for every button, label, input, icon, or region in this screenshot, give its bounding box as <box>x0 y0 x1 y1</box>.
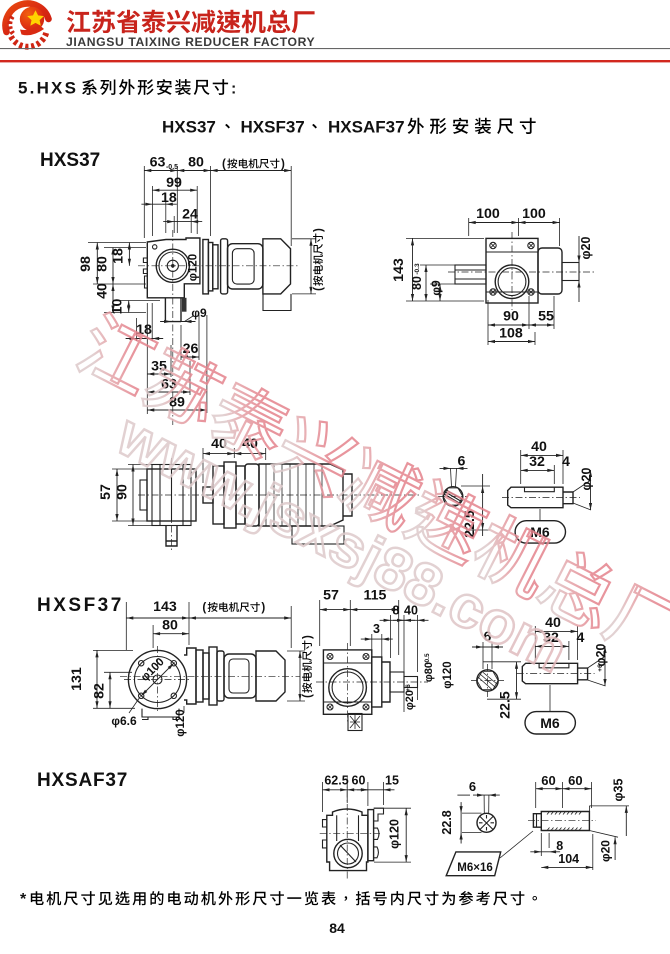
svg-text:(: ( <box>222 158 226 171</box>
svg-text:φ120: φ120 <box>442 661 454 688</box>
svg-text:55: 55 <box>538 309 554 325</box>
svg-text:φ35: φ35 <box>611 779 625 802</box>
svg-text:*: * <box>20 891 27 908</box>
svg-text:(: ( <box>202 601 206 614</box>
svg-text:143: 143 <box>391 258 407 282</box>
svg-text:80: 80 <box>188 155 204 171</box>
svg-text:89: 89 <box>169 395 185 411</box>
svg-text:90: 90 <box>503 309 519 325</box>
svg-text:60: 60 <box>352 774 366 788</box>
svg-text:57: 57 <box>323 588 339 604</box>
svg-text:HXSAF37: HXSAF37 <box>328 118 405 137</box>
svg-text:HXS37: HXS37 <box>162 118 216 137</box>
svg-text:35: 35 <box>151 359 167 375</box>
svg-text:100: 100 <box>522 206 546 222</box>
svg-text:143: 143 <box>153 599 177 615</box>
svg-text:HXSAF37: HXSAF37 <box>37 770 128 791</box>
svg-text:φ20: φ20 <box>594 644 608 667</box>
svg-text:60: 60 <box>568 773 582 788</box>
svg-text:+6: +6 <box>597 664 604 672</box>
svg-text:φ20: φ20 <box>580 468 594 491</box>
svg-text:5.HXS: 5.HXS <box>18 79 78 98</box>
svg-text:HXS37: HXS37 <box>40 150 100 171</box>
svg-text:M6×16: M6×16 <box>457 862 492 874</box>
svg-text:63: 63 <box>150 155 166 171</box>
svg-text:φ9: φ9 <box>429 280 443 296</box>
svg-text:57: 57 <box>98 484 114 500</box>
svg-text:3: 3 <box>373 622 380 636</box>
svg-text:6: 6 <box>458 454 466 470</box>
svg-text:φ120: φ120 <box>175 709 187 736</box>
svg-text:99: 99 <box>166 175 182 191</box>
svg-text:M6: M6 <box>540 715 560 731</box>
svg-text:φ20: φ20 <box>599 840 613 862</box>
svg-text:4: 4 <box>577 630 585 646</box>
svg-text:80: 80 <box>162 618 178 634</box>
svg-text:80: 80 <box>410 276 424 290</box>
svg-text:82: 82 <box>92 683 108 699</box>
svg-text:JIANGSU TAIXING REDUCER FACTOR: JIANGSU TAIXING REDUCER FACTORY <box>66 35 315 49</box>
svg-text:-0.3: -0.3 <box>414 263 421 275</box>
svg-text:24: 24 <box>182 207 198 223</box>
svg-text:(: ( <box>312 287 325 291</box>
svg-text:6: 6 <box>469 779 476 794</box>
svg-text:φ20: φ20 <box>404 690 416 710</box>
svg-text:32: 32 <box>529 454 545 470</box>
svg-text:84: 84 <box>329 920 345 936</box>
svg-text:80: 80 <box>95 256 111 272</box>
svg-text:-0.5: -0.5 <box>166 164 178 171</box>
svg-text:φ6.6: φ6.6 <box>111 714 137 728</box>
svg-text:15: 15 <box>385 774 399 788</box>
svg-text:40: 40 <box>531 439 547 455</box>
svg-text:): ) <box>261 601 265 614</box>
svg-text:φ20: φ20 <box>579 237 593 260</box>
svg-text:HXSF37: HXSF37 <box>241 118 305 137</box>
svg-text:104: 104 <box>558 852 579 866</box>
svg-text:22.5: 22.5 <box>498 691 514 719</box>
svg-text:(: ( <box>301 694 314 698</box>
svg-text:4: 4 <box>562 454 570 470</box>
svg-text:62.5: 62.5 <box>324 774 348 788</box>
svg-text:): ) <box>301 635 314 639</box>
svg-text:108: 108 <box>499 326 523 342</box>
svg-text:φ120: φ120 <box>388 819 402 849</box>
svg-text:22.8: 22.8 <box>440 810 454 834</box>
svg-text:): ) <box>281 158 285 171</box>
svg-text:98: 98 <box>78 256 94 272</box>
svg-text:90: 90 <box>115 484 131 500</box>
svg-text:φ120: φ120 <box>188 254 200 281</box>
svg-text:+6: +6 <box>405 684 412 692</box>
svg-text:18: 18 <box>161 190 177 206</box>
svg-text:60: 60 <box>541 773 555 788</box>
svg-text:18: 18 <box>111 248 127 264</box>
svg-text::: : <box>231 81 236 98</box>
svg-text:100: 100 <box>476 206 500 222</box>
svg-text:): ) <box>312 228 325 232</box>
svg-text:-0.5: -0.5 <box>424 653 431 665</box>
svg-text:8: 8 <box>556 839 563 853</box>
svg-text:10: 10 <box>109 299 125 315</box>
svg-text:HXSF37: HXSF37 <box>37 595 124 616</box>
svg-text:131: 131 <box>69 667 85 691</box>
svg-text:40: 40 <box>95 283 111 299</box>
